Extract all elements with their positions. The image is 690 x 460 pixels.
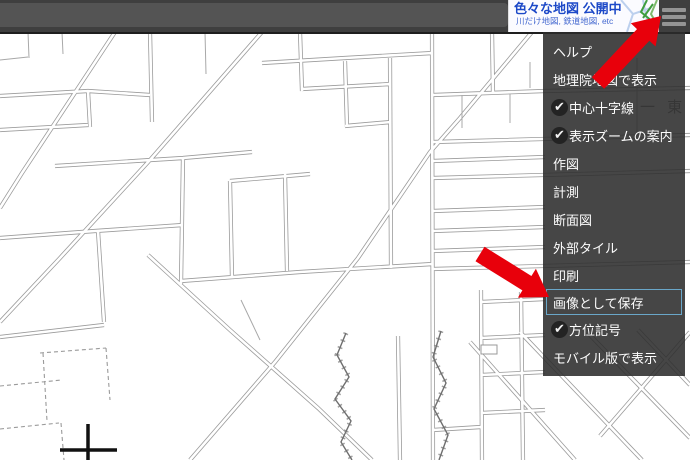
menu-item-label: ヘルプ	[553, 42, 592, 61]
menu-item-label: 印刷	[553, 266, 579, 285]
gsi-map-app: 一 東 色々な地図 公開中 川だけ地図, 鉄道地図, etc ヘルプ地理院地図で…	[0, 0, 690, 460]
menu-item-label: 作図	[553, 154, 579, 173]
menu-item-label: 計測	[553, 182, 579, 201]
menu-item-label: 地理院地図で表示	[553, 70, 657, 89]
check-icon: ✔	[551, 127, 568, 144]
menu-item-1[interactable]: 地理院地図で表示	[543, 65, 685, 93]
menu-item-label: 断面図	[553, 210, 592, 229]
check-icon: ✔	[551, 321, 568, 338]
menu-item-label: 画像として保存	[553, 293, 644, 312]
menu-panel: ヘルプ地理院地図で表示✔中心十字線✔表示ズームの案内作図計測断面図外部タイル印刷…	[543, 32, 685, 376]
maps-banner[interactable]: 色々な地図 公開中 川だけ地図, 鉄道地図, etc	[508, 0, 659, 32]
menu-item-9[interactable]: 画像として保存	[546, 289, 682, 315]
menu-item-0[interactable]: ヘルプ	[543, 37, 685, 65]
banner-subtitle: 川だけ地図, 鉄道地図, etc	[509, 16, 659, 27]
menu-item-10[interactable]: ✔方位記号	[543, 315, 685, 343]
banner-title: 色々な地図 公開中	[509, 0, 659, 16]
check-icon: ✔	[551, 99, 568, 116]
menu-item-label: 表示ズームの案内	[569, 126, 673, 145]
menu-button[interactable]	[660, 4, 688, 30]
hamburger-icon	[662, 15, 686, 19]
menu-item-label: 中心十字線	[569, 98, 634, 117]
menu-item-label: モバイル版で表示	[553, 348, 657, 367]
menu-item-6[interactable]: 断面図	[543, 205, 685, 233]
menu-item-8[interactable]: 印刷	[543, 261, 685, 289]
hamburger-icon	[662, 8, 686, 12]
top-bar-inner	[0, 3, 508, 27]
menu-item-11[interactable]: モバイル版で表示	[543, 343, 685, 371]
menu-item-4[interactable]: 作図	[543, 149, 685, 177]
menu-item-7[interactable]: 外部タイル	[543, 233, 685, 261]
menu-item-3[interactable]: ✔表示ズームの案内	[543, 121, 685, 149]
menu-item-5[interactable]: 計測	[543, 177, 685, 205]
hamburger-icon	[662, 22, 686, 26]
menu-item-2[interactable]: ✔中心十字線	[543, 93, 685, 121]
menu-item-label: 外部タイル	[553, 238, 618, 257]
menu-item-label: 方位記号	[569, 320, 621, 339]
